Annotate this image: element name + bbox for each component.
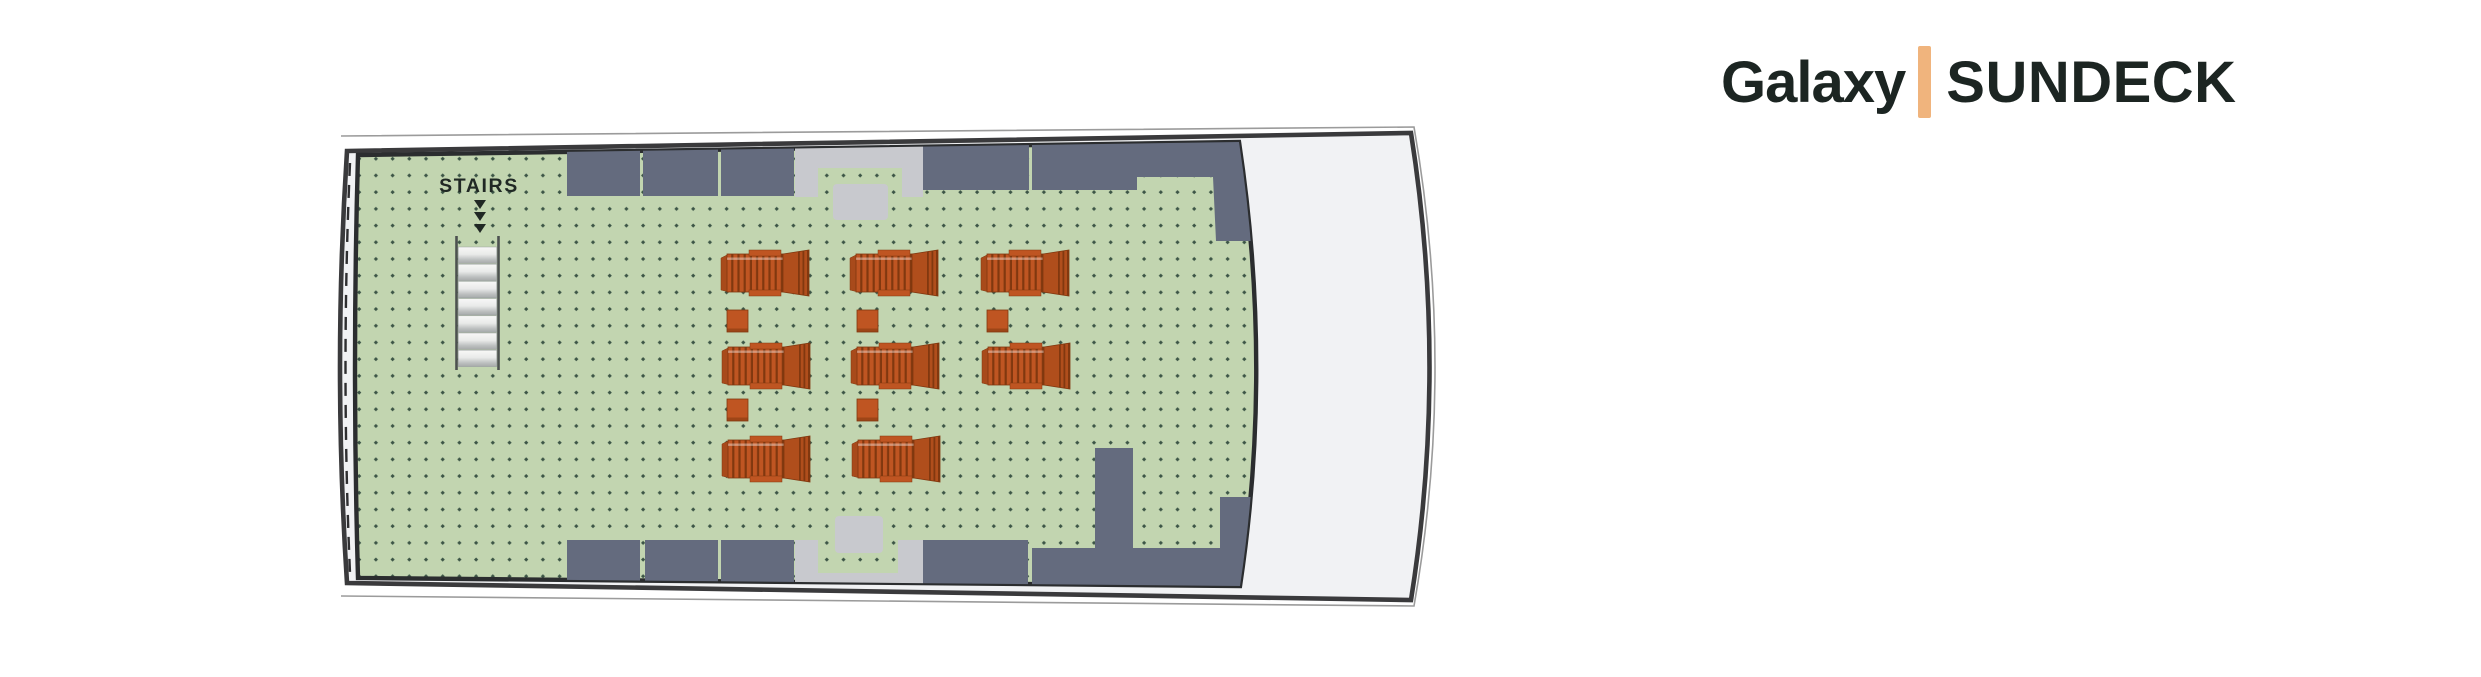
title-divider-bar bbox=[1918, 46, 1931, 118]
sun-lounger bbox=[981, 250, 1069, 296]
stair-tread bbox=[458, 247, 496, 263]
side-table bbox=[987, 310, 1008, 332]
stair-tread bbox=[458, 264, 496, 280]
deck-structure bbox=[721, 540, 794, 602]
deck-structure-box bbox=[833, 184, 888, 220]
side-table bbox=[857, 399, 878, 421]
stairs-label: STAIRS bbox=[439, 175, 519, 197]
sun-lounger bbox=[721, 250, 809, 296]
deck-structure bbox=[923, 139, 1029, 190]
stair-tread bbox=[458, 350, 496, 366]
sun-lounger bbox=[722, 343, 810, 389]
side-table bbox=[857, 310, 878, 332]
deck-name-text: SUNDECK bbox=[1946, 49, 2236, 116]
sun-lounger bbox=[851, 343, 939, 389]
deck-structure bbox=[645, 540, 718, 601]
sun-lounger bbox=[852, 436, 940, 482]
sun-lounger bbox=[850, 250, 938, 296]
stair-tread bbox=[458, 316, 496, 332]
side-table bbox=[727, 399, 748, 421]
sun-lounger bbox=[722, 436, 810, 482]
side-table bbox=[727, 310, 748, 332]
stair-tread bbox=[458, 299, 496, 315]
canvas: STAIRS Galaxy SUNDECK bbox=[0, 0, 2481, 677]
deck-structure bbox=[567, 540, 640, 600]
stair-tread bbox=[458, 281, 496, 297]
brand-text: Galaxy bbox=[1721, 49, 1905, 116]
deck-structure-box bbox=[835, 516, 883, 553]
title-block: Galaxy SUNDECK bbox=[1721, 42, 2237, 122]
stair-tread bbox=[458, 333, 496, 349]
sun-lounger bbox=[982, 343, 1070, 389]
